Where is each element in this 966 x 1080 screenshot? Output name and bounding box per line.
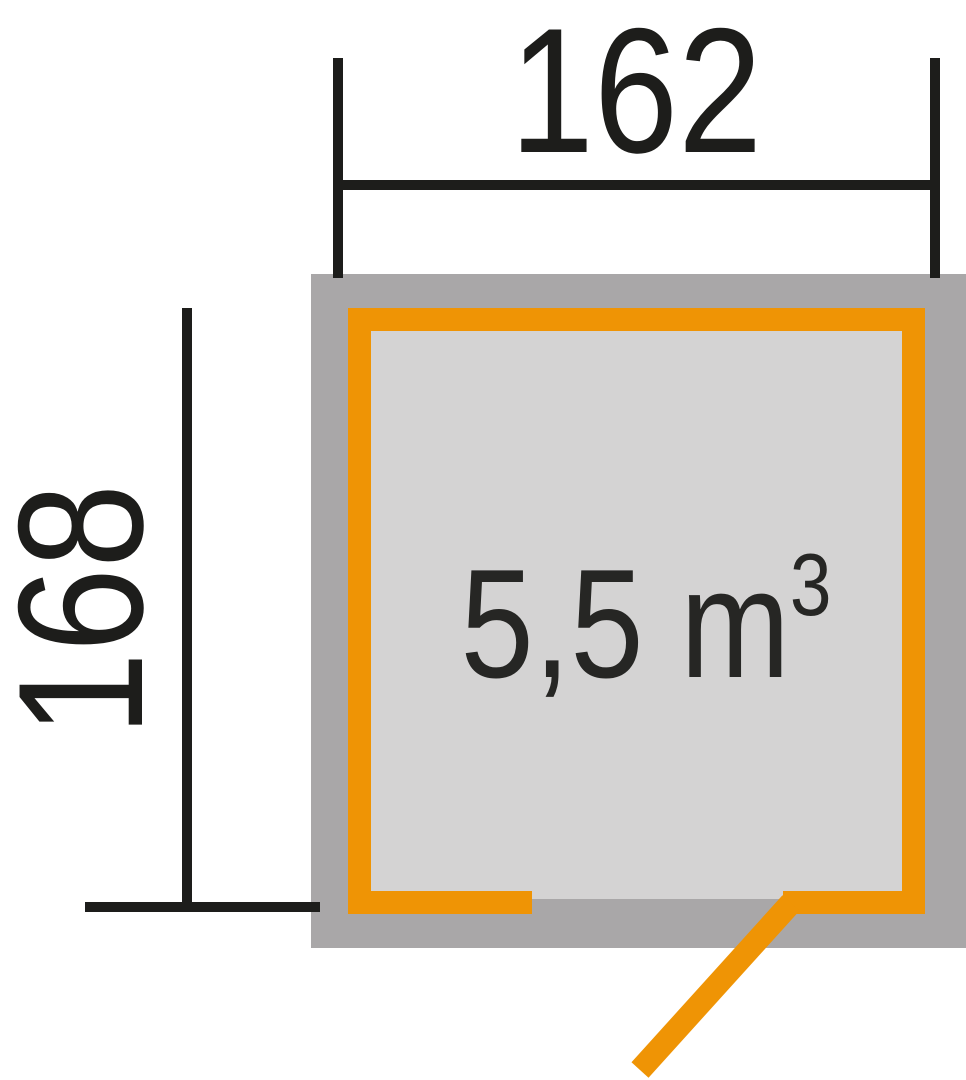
height-dimension-tick-bottom [85, 902, 320, 912]
floor-plan-diagram: 162 168 5,5 m3 [0, 0, 966, 1080]
wall-top [348, 308, 925, 331]
wall-bottom-left-segment [348, 891, 532, 914]
width-extension-line-right [930, 58, 940, 278]
width-dimension-label: 162 [510, 0, 762, 191]
height-dimension-label: 168 [0, 484, 181, 736]
shed-floor-plan-svg: 162 168 5,5 m3 [0, 0, 966, 1080]
wall-right [902, 308, 925, 914]
width-extension-line-left [333, 58, 343, 278]
wall-left [348, 308, 371, 914]
wall-bottom-right-segment [783, 891, 925, 914]
volume-value-unit: 5,5 m [460, 538, 789, 710]
volume-exponent: 3 [790, 536, 832, 634]
height-dimension-line [182, 308, 192, 911]
volume-label: 5,5 m3 [460, 536, 831, 710]
